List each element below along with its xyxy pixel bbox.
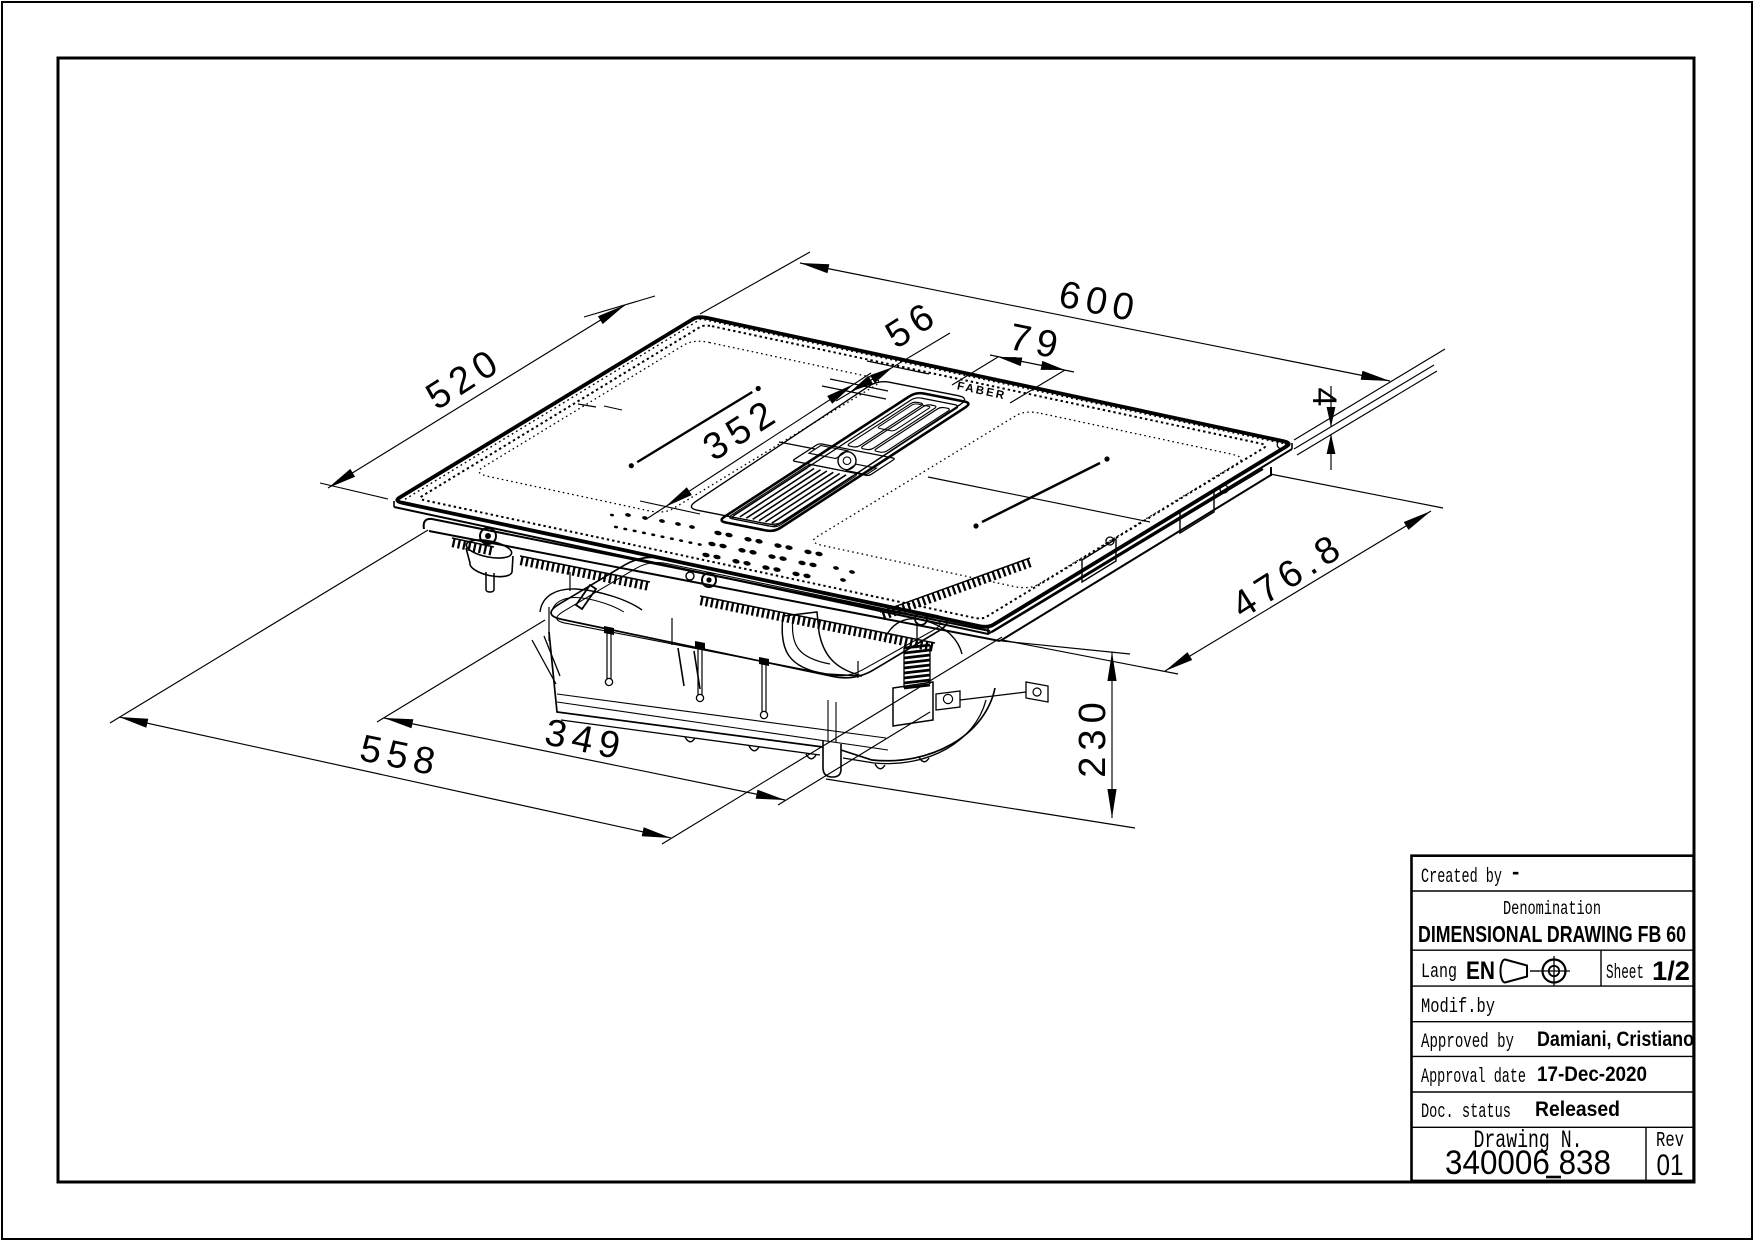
svg-text:1/2: 1/2 [1652,956,1690,986]
svg-text:17-Dec-2020: 17-Dec-2020 [1537,1063,1647,1086]
svg-text:EN: EN [1466,957,1495,985]
svg-text:Damiani, Cristiano: Damiani, Cristiano [1537,1028,1694,1051]
svg-text:Denomination: Denomination [1503,898,1601,920]
svg-text:Created by: Created by [1421,866,1502,889]
svg-text:Approval date: Approval date [1421,1066,1526,1089]
svg-text:558: 558 [356,728,444,785]
svg-text:600: 600 [1055,274,1143,331]
svg-text:Released: Released [1535,1098,1620,1121]
svg-text:4: 4 [1305,388,1343,413]
svg-text:01: 01 [1657,1149,1684,1182]
svg-text:Modif.by: Modif.by [1421,996,1495,1019]
svg-text:Sheet: Sheet [1606,962,1644,985]
svg-text:340006 838: 340006 838 [1445,1144,1611,1182]
svg-text:Doc. status: Doc. status [1421,1101,1511,1124]
svg-text:Lang: Lang [1421,961,1457,984]
svg-text:DIMENSIONAL DRAWING FB 60: DIMENSIONAL DRAWING FB 60 [1418,921,1686,947]
svg-text:476.8: 476.8 [1225,525,1353,628]
svg-text:230: 230 [1072,696,1114,777]
svg-text:Approved by: Approved by [1421,1031,1514,1054]
svg-text:-: - [1512,859,1519,884]
svg-text:56: 56 [878,293,946,358]
svg-text:520: 520 [419,339,510,418]
